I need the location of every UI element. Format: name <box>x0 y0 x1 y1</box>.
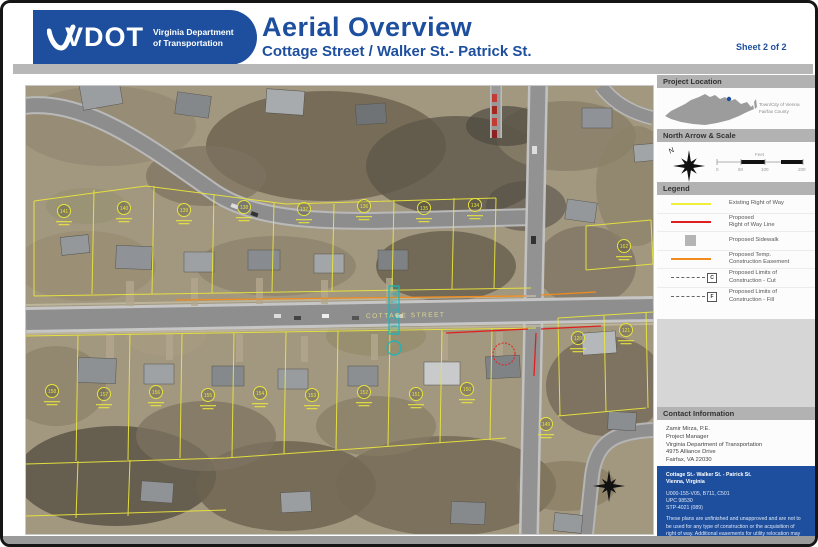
parcel-number: 137 <box>300 207 309 213</box>
virginia-map-icon <box>663 92 759 128</box>
fill-marker: F <box>707 292 717 302</box>
parcel-number: 158 <box>48 389 57 395</box>
dashed-line-symbol <box>671 277 705 278</box>
sidebar: Project Location Town/City of Vienna Fai… <box>657 75 815 539</box>
legend-header: Legend <box>657 182 815 195</box>
legend-row-limits-fill: F Proposed Limits ofConstruction - Fill <box>657 288 815 307</box>
project-town: Vienna, Virginia <box>666 479 806 486</box>
page-title: Aerial Overview <box>262 12 472 43</box>
north-arrow-icon: N <box>663 142 713 182</box>
orange-line-symbol <box>671 258 711 260</box>
parcel-number: 155 <box>204 393 213 399</box>
plan-sheet: VDOT Virginia Department of Transportati… <box>0 0 818 547</box>
parcel-number: 134 <box>471 203 480 209</box>
legend-row-temp-easement: Proposed Temp.Construction Easement <box>657 251 815 270</box>
parcel-number: 149 <box>542 422 551 428</box>
bottom-strip <box>3 536 815 544</box>
contact-info-body: Zamir Mirza, P.E. Project Manager Virgin… <box>657 420 815 466</box>
project-location-dot <box>727 97 731 101</box>
project-ref-1: U000-155-V05, B711, C501 <box>666 491 806 498</box>
parcel-number: 162 <box>620 244 629 250</box>
legend-row-existing-row: Existing Right of Way <box>657 195 815 214</box>
dashed-line-symbol <box>671 296 705 297</box>
contact-city: Fairfax, VA 22030 <box>666 457 806 465</box>
legend-row-proposed-sidewalk: Proposed Sidewalk <box>657 232 815 251</box>
contact-role: Project Manager <box>666 434 806 442</box>
north-arrow-scale-header: North Arrow & Scale <box>657 129 815 142</box>
parcel-number: 150 <box>463 387 472 393</box>
parcel-number: 141 <box>60 209 69 215</box>
page-subtitle: Cottage Street / Walker St.- Patrick St. <box>262 43 532 60</box>
vdot-logo: VDOT <box>47 23 144 53</box>
parcel-number: 138 <box>240 205 249 211</box>
project-name: Cottage St.- Walker St. - Patrick St. <box>666 472 806 479</box>
project-location-header: Project Location <box>657 75 815 88</box>
scale-bar: Feet 0 50 100 200 <box>715 150 809 176</box>
gray-square-symbol <box>685 235 696 246</box>
project-location-body: Town/City of Vienna Fairfax County <box>657 88 815 129</box>
red-line-symbol <box>671 221 711 223</box>
aerial-photo: 1411401391381371361351341581571561551541… <box>25 85 654 535</box>
parcel-number: 121 <box>622 328 631 334</box>
project-ref-3: STP-4021 (089) <box>666 505 806 512</box>
legend-row-proposed-row-line: ProposedRight of Way Line <box>657 214 815 233</box>
north-arrow-scale-body: N Feet 0 50 100 200 <box>657 142 815 182</box>
legend-body: Existing Right of Way ProposedRight of W… <box>657 195 815 319</box>
svg-text:100: 100 <box>761 167 769 172</box>
vdot-swoosh-icon <box>47 23 87 53</box>
project-info-box: Cottage St.- Walker St. - Patrick St. Vi… <box>657 466 815 539</box>
contact-org: Virginia Department of Transportation <box>666 442 806 450</box>
cut-marker: C <box>707 273 717 283</box>
parcel-number: 140 <box>120 206 129 212</box>
parcel-number: 157 <box>100 392 109 398</box>
parcel-number: 152 <box>360 390 369 396</box>
svg-text:200: 200 <box>798 167 806 172</box>
legend-row-limits-cut: C Proposed Limits ofConstruction - Cut <box>657 269 815 288</box>
parcel-number: 135 <box>420 206 429 212</box>
sheet-number: Sheet 2 of 2 <box>736 42 787 52</box>
parcel-number: 154 <box>256 391 265 397</box>
yellow-line-symbol <box>671 203 711 205</box>
parcel-number: 136 <box>360 204 369 210</box>
street-name-label: COTTAGE STREET <box>366 312 446 320</box>
vdot-logo-block: VDOT Virginia Department of Transportati… <box>33 10 257 65</box>
parcel-number: 156 <box>152 390 161 396</box>
svg-text:Feet: Feet <box>755 152 765 157</box>
map-frame: 1411401391381371361351341581571561551541… <box>13 79 655 537</box>
contact-info-header: Contact Information <box>657 407 815 420</box>
agency-name: Virginia Department of Transportation <box>153 27 234 47</box>
parcel-number: 153 <box>308 393 317 399</box>
project-ref-2: UPC 98530 <box>666 498 806 505</box>
parcel-number: 120 <box>574 336 583 342</box>
header-divider <box>13 64 813 74</box>
parcel-number: 139 <box>180 208 189 214</box>
svg-text:0: 0 <box>716 167 719 172</box>
svg-text:50: 50 <box>738 167 744 172</box>
svg-text:N: N <box>668 146 677 155</box>
parcel-number: 151 <box>412 392 421 398</box>
contact-address: 4975 Alliance Drive <box>666 449 806 457</box>
contact-name: Zamir Mirza, P.E. <box>666 426 806 434</box>
project-location-note: Town/City of Vienna Fairfax County <box>759 102 800 116</box>
